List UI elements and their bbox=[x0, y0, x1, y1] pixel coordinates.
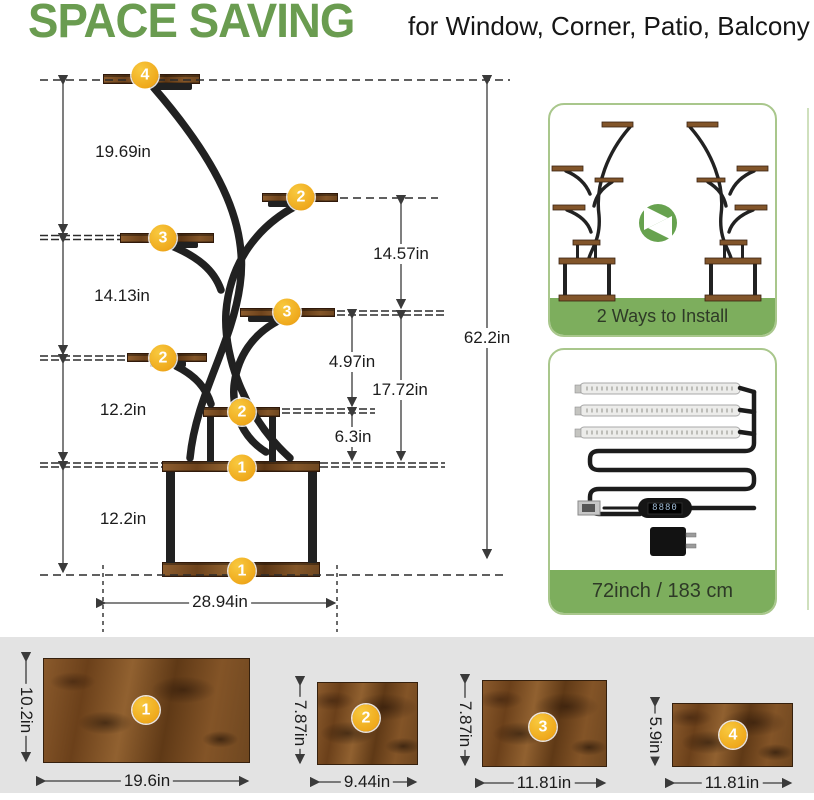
dim-total-height: 62.2in bbox=[461, 328, 513, 348]
badge-shelf-3-right: 3 bbox=[274, 299, 301, 326]
card-grow-light-kit: 72inch / 183 cm bbox=[548, 348, 777, 615]
badge-plank-2: 2 bbox=[353, 705, 380, 732]
badge-shelf-4: 4 bbox=[132, 62, 159, 89]
badge-shelf-1-bottom: 1 bbox=[229, 558, 256, 585]
install-caption: 2 Ways to Install bbox=[597, 306, 728, 327]
badge-plank-1: 1 bbox=[133, 697, 160, 724]
install-caption-band: 2 Ways to Install bbox=[550, 298, 775, 335]
light-caption-band: 72inch / 183 cm bbox=[550, 570, 775, 613]
plank-1-height-label: 10.2in bbox=[16, 684, 36, 736]
badge-shelf-2-center: 2 bbox=[229, 399, 256, 426]
plank-4-height-label: 5.9in bbox=[645, 714, 665, 757]
dim-left-top: 19.69in bbox=[92, 142, 154, 162]
badge-shelf-3-left: 3 bbox=[150, 225, 177, 252]
dim-mid-upper: 14.57in bbox=[370, 244, 432, 264]
light-caption: 72inch / 183 cm bbox=[592, 580, 733, 603]
badge-shelf-1-top: 1 bbox=[229, 455, 256, 482]
plank-3-height-label: 7.87in bbox=[455, 698, 475, 750]
dim-mid-lower: 17.72in bbox=[369, 380, 431, 400]
badge-plank-3: 3 bbox=[530, 714, 557, 741]
dim-mid-bottom: 6.3in bbox=[332, 427, 375, 447]
dim-left-upper: 14.13in bbox=[91, 286, 153, 306]
page-edge-artifact bbox=[807, 108, 809, 610]
page-title: SPACE SAVING bbox=[28, 0, 354, 49]
page-subtitle: for Window, Corner, Patio, Balcony bbox=[408, 11, 810, 42]
product-infographic: SPACE SAVING for Window, Corner, Patio, … bbox=[0, 0, 814, 800]
plank-4-width-label: 11.81in bbox=[702, 773, 763, 793]
badge-shelf-2-right: 2 bbox=[288, 184, 315, 211]
plank-2-height-label: 7.87in bbox=[290, 697, 310, 749]
dim-mid-small: 4.97in bbox=[326, 352, 378, 372]
dim-left-lower: 12.2in bbox=[97, 509, 149, 529]
dim-base-width: 28.94in bbox=[189, 592, 251, 612]
plank-1-width-label: 19.6in bbox=[121, 771, 173, 791]
plank-3-width-label: 11.81in bbox=[514, 773, 575, 793]
controller-display: 8880 bbox=[652, 503, 678, 513]
card-two-ways-to-install: 2 Ways to Install bbox=[548, 103, 777, 337]
badge-plank-4: 4 bbox=[720, 722, 747, 749]
dim-left-mid: 12.2in bbox=[97, 400, 149, 420]
plank-2-width-label: 9.44in bbox=[341, 772, 393, 792]
badge-shelf-2-left: 2 bbox=[150, 345, 177, 372]
